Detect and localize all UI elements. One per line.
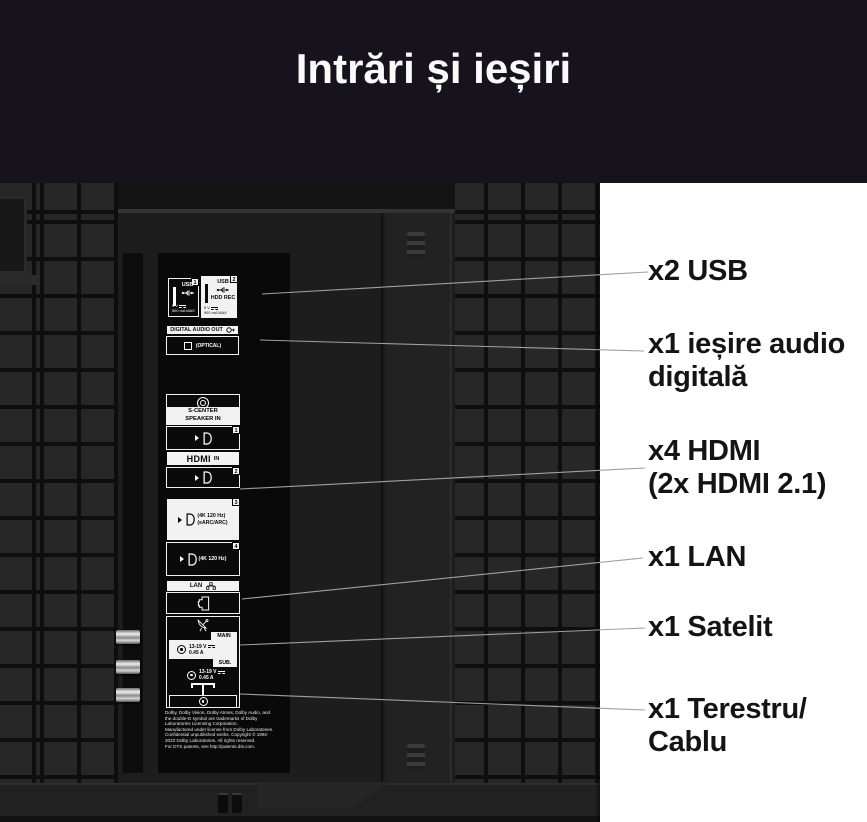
lan-port — [166, 592, 240, 614]
sat-main-volt: 13-19 V — [189, 644, 207, 650]
callout-line-text: x1 Terestru/ — [648, 693, 807, 726]
usb-amp: 500 mA MAX — [172, 309, 195, 314]
digital-audio-out-band: DIGITAL AUDIO OUT — [166, 325, 239, 335]
screw-icon — [407, 232, 425, 257]
audio-out-arrow-icon — [226, 326, 235, 334]
callout-line-text: digitală — [648, 361, 845, 394]
usb-port-2-hdd-rec: 2 USB HDD REC 5 V 900 mA MAX — [200, 275, 238, 319]
hdmi-plug-icon — [184, 512, 195, 527]
satellite-main-tab: MAIN — [211, 632, 237, 640]
callout-terrestrial-cable: x1 Terestru/ Cablu — [648, 693, 807, 759]
screw-icon — [407, 744, 425, 769]
ethernet-port-icon — [197, 596, 210, 611]
s-center-speaker-in-port: S-CENTER SPEAKER IN — [166, 394, 240, 425]
arrow-icon — [178, 517, 182, 523]
s-center-line1: S-CENTER — [167, 408, 239, 416]
hdmi-port-4: 4 (4K 120 Hz) — [166, 542, 240, 576]
hdmi3-spec-line2: (eARC/ARC) — [197, 520, 227, 526]
callout-lan: x1 LAN — [648, 541, 746, 574]
hdmi-port-3-earc: 3 (4K 120 Hz) (eARC/ARC) — [166, 498, 240, 541]
callout-hdmi: x4 HDMI (2x HDMI 2.1) — [648, 435, 826, 501]
network-nodes-icon — [206, 582, 216, 590]
coax-connector-icon — [199, 697, 208, 706]
hdmi-port-2: 2 — [166, 467, 240, 488]
coax-plug-connector — [116, 688, 140, 702]
hdmi-port-1: 1 — [166, 426, 240, 450]
dc-power-icon — [211, 306, 218, 311]
usb-trident-icon — [181, 289, 195, 297]
callout-line-text: (2x HDMI 2.1) — [648, 468, 826, 501]
hdmi-in-band: HDMI IN — [166, 451, 240, 466]
coax-connector-icon — [177, 645, 186, 654]
wall-mount-bracket — [0, 196, 27, 274]
s-center-line2: SPEAKER IN — [167, 416, 239, 424]
tv-io-infographic: Intrări și ieșiri 1 USB — [0, 0, 867, 822]
fine-print-line: For DTS patents, see http://patents.dts.… — [165, 744, 293, 750]
hdmi-in-label: IN — [214, 456, 220, 462]
recess-right-column — [381, 211, 452, 783]
digital-audio-out-label: DIGITAL AUDIO OUT — [170, 327, 223, 333]
t-antenna-icon — [191, 683, 215, 695]
dc-power-icon — [179, 304, 186, 309]
header-banner: Intrări și ieșiri — [0, 0, 867, 183]
coax-plug-connector — [116, 660, 140, 674]
optical-label: (OPTICAL) — [196, 343, 221, 349]
callout-line-text: Cablu — [648, 726, 807, 759]
coax-plug-connector — [116, 630, 140, 644]
dolby-dts-fine-print: Dolby, Dolby Vision, Dolby Atmos, Dolby … — [165, 710, 293, 749]
callout-line-text: x4 HDMI — [648, 435, 826, 468]
hdmi4-spec-line1: (4K 120 Hz) — [199, 556, 227, 562]
hdmi-plug-icon — [201, 431, 212, 446]
callout-line-text: x1 Satelit — [648, 611, 772, 644]
tv-right-edge-shadow — [595, 183, 600, 822]
arrow-icon — [195, 475, 199, 481]
port-number-badge: 2 — [232, 467, 240, 475]
hdmi-plug-icon — [186, 552, 197, 567]
optical-square-icon — [184, 342, 192, 350]
arrow-icon — [195, 435, 199, 441]
coax-connector-icon — [187, 671, 196, 680]
usb-amp: 900 mA MAX — [204, 311, 227, 316]
terrestrial-cable-port — [169, 695, 237, 708]
tv-bottom-ledge — [0, 783, 600, 822]
hdmi-plug-icon — [201, 470, 212, 485]
satellite-dish-icon — [196, 618, 211, 632]
satellite-sub-port: 13-19 V 0.45 A — [169, 667, 237, 683]
lan-band: LAN — [166, 580, 240, 592]
port-number-badge: 3 — [232, 498, 240, 506]
dc-power-icon — [208, 644, 215, 649]
callout-satellite: x1 Satelit — [648, 611, 772, 644]
satellite-sub-tab: SUB. — [213, 659, 237, 667]
page-title: Intrări și ieșiri — [296, 45, 571, 138]
satellite-main-port: 13-19 V 0.45 A — [169, 640, 237, 659]
callout-digital-audio-out: x1 ieșire audio digitală — [648, 328, 845, 394]
port-number-badge: 1 — [232, 426, 240, 434]
hdmi-logo: HDMI — [187, 454, 211, 464]
lan-label: LAN — [190, 583, 202, 589]
callout-line-text: x1 ieșire audio — [648, 328, 845, 361]
usb-label: USB — [217, 279, 229, 285]
sat-main-amp: 0.45 A — [189, 650, 215, 656]
callout-usb: x2 USB — [648, 255, 748, 288]
sat-sub-amp: 0.45 A — [199, 675, 225, 681]
stand-tabs — [218, 793, 242, 813]
usb-port-1: 1 USB 5 V 500 mA MAX — [168, 278, 199, 317]
callout-line-text: x2 USB — [648, 255, 748, 288]
usb-label: USB — [182, 282, 194, 288]
stand-wedge — [258, 782, 388, 808]
port-number-badge: 4 — [232, 542, 240, 550]
usb-slot-icon — [205, 284, 208, 303]
optical-out-port: (OPTICAL) — [166, 336, 239, 355]
hdd-rec-label: HDD REC — [211, 295, 236, 301]
antenna-section: MAIN 13-19 V 0.45 A SUB. 13-19 V 0.45 A — [166, 616, 240, 708]
arrow-icon — [180, 556, 184, 562]
dc-power-icon — [218, 670, 225, 675]
callout-line-text: x1 LAN — [648, 541, 746, 574]
hdmi3-spec-line1: (4K 120 Hz) — [197, 513, 227, 519]
usb-trident-icon — [216, 286, 230, 294]
